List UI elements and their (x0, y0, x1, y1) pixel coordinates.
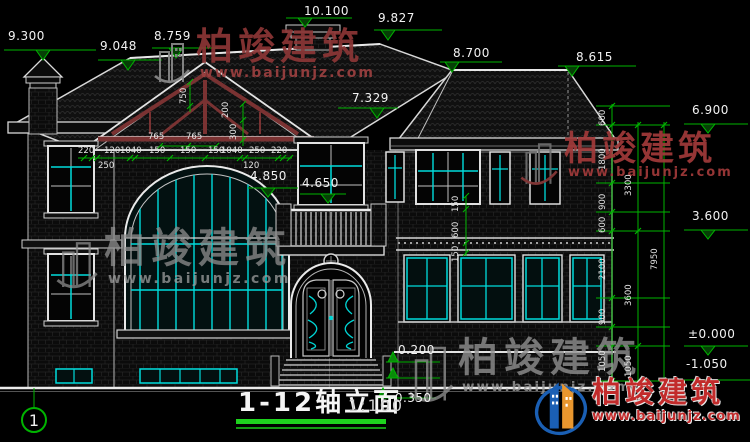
elevation-label-ridge: 9.827 (378, 12, 415, 24)
dim-label-cornice: 150 (452, 246, 461, 262)
dim-label: 1040 (120, 147, 142, 156)
elevation-label-balcony: 4.650 (302, 177, 339, 189)
dim-label-right: 900 (599, 309, 608, 325)
dim-label-right: 900 (599, 194, 608, 210)
dim-label: 765 (148, 133, 164, 142)
elevation-label-deck-left: 8.700 (453, 47, 490, 59)
elevation-label-gable-window: 4.850 (250, 170, 287, 182)
dim-label-right: 1050 (599, 350, 608, 372)
dim-label: 765 (186, 133, 202, 142)
dim-label: 220 (78, 147, 94, 156)
left-eave-band (8, 122, 122, 133)
dim-label-truss: 750 (180, 88, 189, 104)
axis-bubble-1: 1 (21, 407, 47, 433)
elevation-label-chimney-top: 10.100 (304, 5, 349, 17)
title-underline-thin (236, 427, 386, 429)
entry-door (291, 263, 371, 358)
axis-label: 1 (29, 411, 39, 430)
dim-label-cornice: 150 (452, 196, 461, 212)
dim-label-cornice: 600 (452, 222, 461, 238)
dim-label-right-mid: 1050 (625, 355, 634, 377)
elevation-label-gable-peak: 8.759 (154, 30, 191, 42)
left-wing-window-1f (44, 249, 98, 326)
dim-label-right-mid: 3300 (625, 174, 634, 196)
dim-label-right-mid: 3600 (625, 284, 634, 306)
elevation-label-foundation: -1.050 (686, 358, 728, 370)
elevation-label-eave-right: 7.329 (352, 92, 389, 104)
elevation-label-chimney-left: 9.300 (8, 30, 45, 42)
dim-label: 150 (180, 147, 196, 156)
elevation-label-zero: ±0.000 (688, 328, 735, 340)
dim-label: 150 (149, 147, 165, 156)
dim-label-truss: 300 (230, 124, 239, 140)
dim-label: 120 (243, 162, 259, 171)
dim-label: 250 (249, 147, 265, 156)
dim-label: 1040 (221, 147, 243, 156)
title-underline (236, 419, 386, 424)
dim-label-right: 1800 (599, 148, 608, 170)
dim-label-right-total: 7950 (651, 248, 660, 270)
dim-label-truss: 200 (222, 102, 231, 118)
elevation-label-roof-left: 9.048 (100, 40, 137, 52)
drawing-scale: 1:100 (348, 398, 404, 414)
elevation-label-deck-right: 8.615 (576, 51, 613, 63)
dim-label: 220 (271, 147, 287, 156)
chimney-left (24, 58, 62, 134)
elevation-label-eave-level: 6.900 (692, 104, 729, 116)
dim-label-right: 600 (599, 217, 608, 233)
dim-label: 120 (104, 147, 120, 156)
elevation-label-floor2: 3.600 (692, 210, 729, 222)
dim-label: 250 (98, 162, 114, 171)
cad-elevation-drawing: 柏竣建筑 www.baijunjz.com 柏竣建筑 www.baijunjz.… (0, 0, 750, 442)
basement-windows (56, 369, 237, 383)
dim-label-right: 600 (599, 110, 608, 126)
dim-label-right: 2100 (599, 258, 608, 280)
right-eave-band (390, 138, 618, 150)
elevation-linework (0, 0, 750, 442)
elevation-label-entry-landing: 0.200 (398, 344, 435, 356)
